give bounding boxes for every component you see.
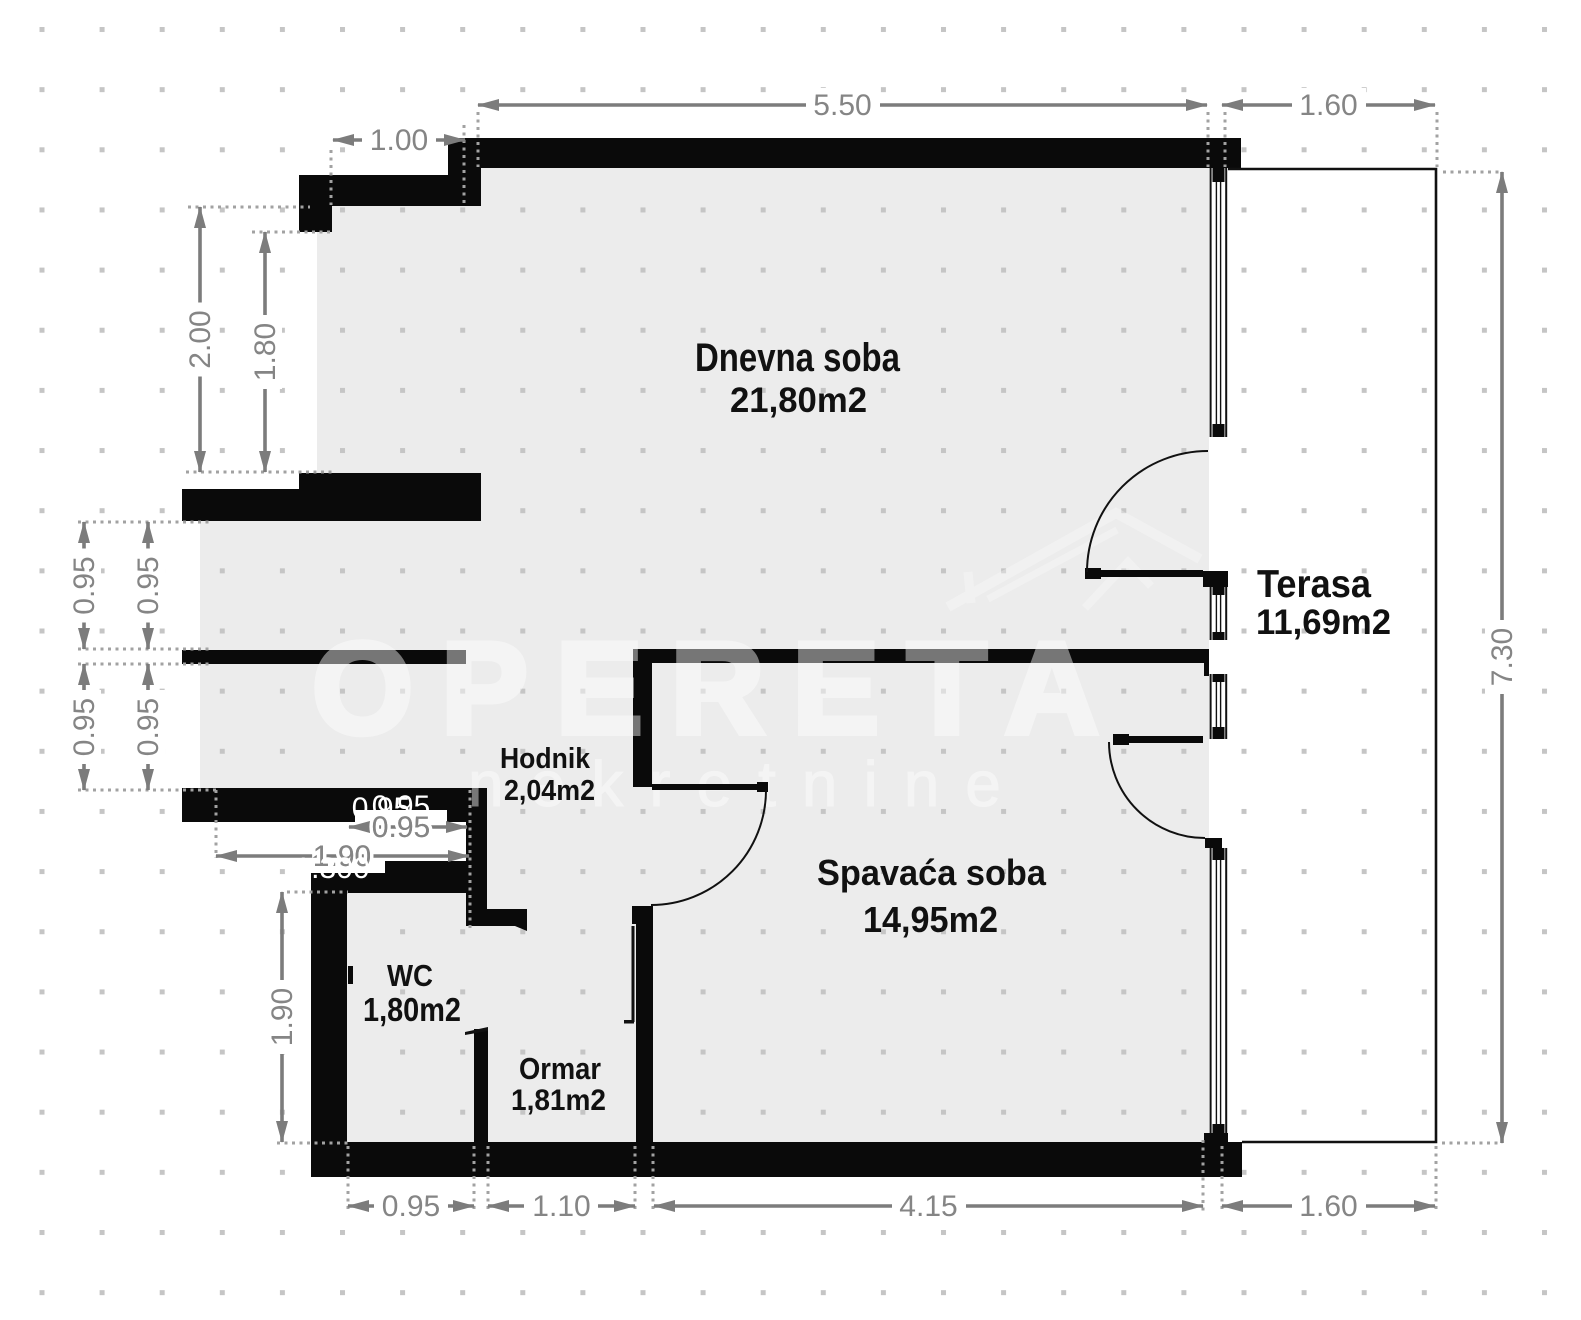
svg-text:2,04m2: 2,04m2 xyxy=(504,775,595,807)
svg-text:Hodnik: Hodnik xyxy=(500,743,591,775)
svg-text:Dnevna soba: Dnevna soba xyxy=(695,336,901,380)
svg-text:OPERETA: OPERETA xyxy=(312,615,1127,761)
svg-text:1.60: 1.60 xyxy=(1299,89,1357,122)
svg-text:Ormar: Ormar xyxy=(519,1051,601,1086)
svg-text:14,95m2: 14,95m2 xyxy=(863,899,998,940)
svg-text:WC: WC xyxy=(387,958,433,993)
svg-text:0.95: 0.95 xyxy=(132,556,165,614)
svg-text:1.10: 1.10 xyxy=(532,1190,590,1223)
svg-text:5.50: 5.50 xyxy=(813,89,871,122)
svg-text:1.80: 1.80 xyxy=(249,323,282,381)
svg-text:0.95: 0.95 xyxy=(382,1190,440,1223)
svg-text:Spavaća soba: Spavaća soba xyxy=(817,852,1047,893)
svg-text:11,69m2: 11,69m2 xyxy=(1256,603,1391,642)
svg-text:0.95: 0.95 xyxy=(68,698,101,756)
svg-text:1.300: 1.300 xyxy=(294,852,369,885)
svg-text:0.95: 0.95 xyxy=(68,556,101,614)
svg-text:4.15: 4.15 xyxy=(899,1190,957,1223)
svg-text:1.00: 1.00 xyxy=(370,124,428,157)
svg-text:Terasa: Terasa xyxy=(1257,563,1371,606)
svg-text:1.60: 1.60 xyxy=(1299,1190,1357,1223)
svg-text:1,81m2: 1,81m2 xyxy=(511,1084,606,1117)
svg-text:7.30: 7.30 xyxy=(1486,628,1519,686)
svg-text:1,80m2: 1,80m2 xyxy=(363,991,461,1028)
svg-text:2.00: 2.00 xyxy=(184,310,217,368)
svg-text:1.90: 1.90 xyxy=(266,988,299,1046)
svg-text:21,80m2: 21,80m2 xyxy=(730,381,867,420)
svg-text:0.95: 0.95 xyxy=(132,698,165,756)
